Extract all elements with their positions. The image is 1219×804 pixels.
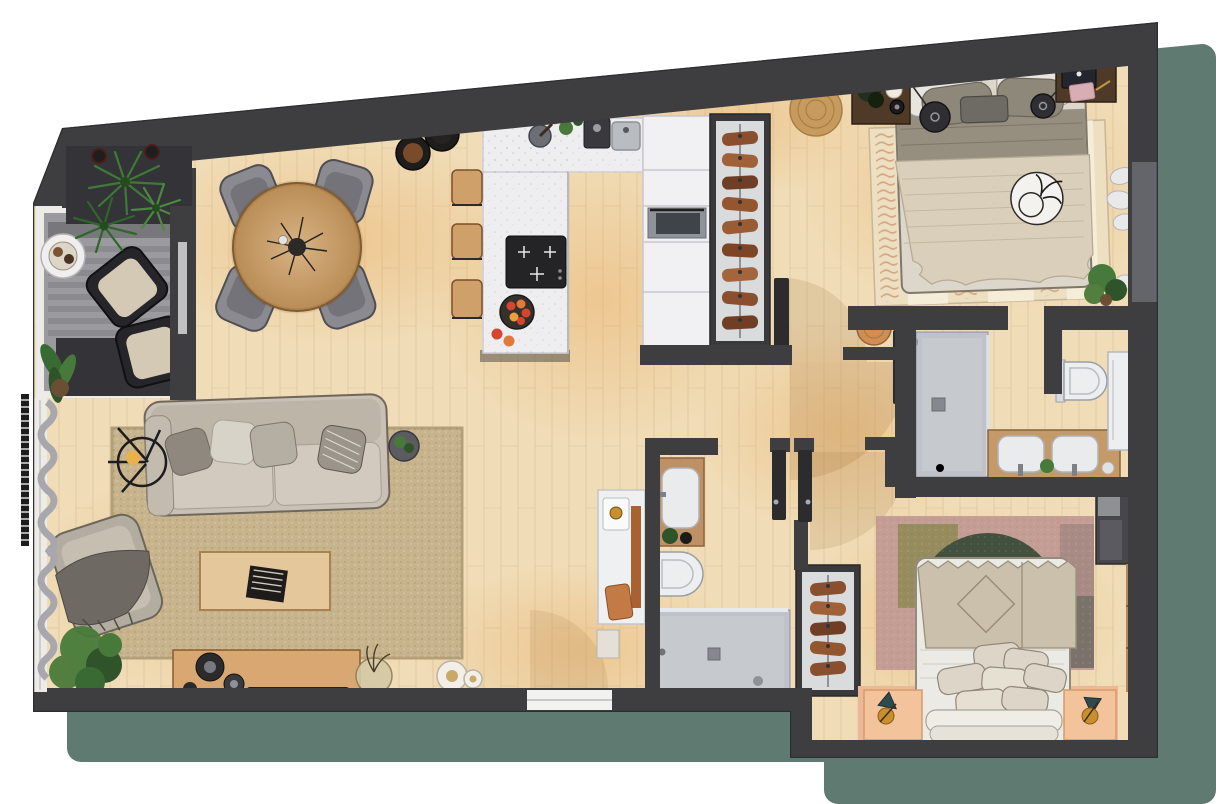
shower-head (753, 676, 763, 686)
step-wall (790, 688, 812, 758)
right-wall-recess (1132, 162, 1158, 302)
book (246, 566, 288, 603)
separator-window (178, 242, 187, 334)
open-closet-2 (796, 565, 860, 696)
coat-closet (710, 114, 770, 348)
hall-wall-stub (843, 347, 895, 360)
bottom-wall (33, 688, 812, 712)
sofa (144, 394, 390, 516)
walk-in-shower-1 (906, 332, 988, 477)
induction-cooktop (506, 236, 566, 288)
notepad (1069, 82, 1095, 101)
coffee-machine (584, 118, 610, 148)
south-door-opening (527, 690, 612, 710)
radiator (21, 394, 29, 546)
side-table-plant (389, 431, 419, 461)
vanity-plant (662, 528, 678, 544)
wooden-board (631, 506, 641, 608)
shower-drain (708, 648, 720, 660)
nightstand-2-left (864, 690, 922, 740)
cutting-board (605, 583, 633, 620)
shower-control (936, 464, 944, 472)
diamond-throw (918, 561, 1076, 648)
cream-throw (896, 155, 1094, 288)
hanging-clothes (721, 130, 758, 329)
nightstand-2-right (1064, 690, 1116, 740)
round-dining-table (233, 183, 361, 311)
balcony-side-table (41, 234, 85, 278)
bathroom2-left-wall (645, 438, 660, 695)
vanity-plant (1040, 459, 1054, 473)
bathroom1-left-wall (895, 328, 916, 498)
bar-stools (452, 170, 482, 318)
double-vanity (988, 430, 1120, 478)
tall-cabinets (643, 116, 710, 350)
kitchen-back-wall (640, 345, 792, 365)
bathroom1-bottom-wall (895, 477, 1140, 497)
coffee-table (200, 552, 330, 610)
folded-blanket (960, 95, 1008, 123)
floor-plan-stage (0, 0, 1219, 804)
vanity-2 (658, 458, 704, 546)
faucet (1072, 464, 1077, 476)
shower-drain (932, 398, 945, 411)
bottom-wall-low (790, 740, 1158, 758)
toilet-2 (656, 552, 703, 596)
bedroom1-wall-left (848, 306, 1008, 330)
bedroom2-west-wall (794, 520, 808, 570)
kitchen-sink (612, 122, 640, 150)
floor-plan-render (0, 0, 1219, 804)
faucet (1018, 464, 1023, 476)
decor-plate (1010, 172, 1064, 226)
dining-area (212, 157, 379, 336)
oven-glass (656, 213, 700, 234)
toilet-1 (1056, 360, 1107, 402)
bathroom2-top-wall (645, 438, 718, 455)
bed-2 (916, 558, 1076, 742)
toilet-partition (1044, 306, 1062, 394)
walk-in-shower-2 (650, 610, 790, 694)
